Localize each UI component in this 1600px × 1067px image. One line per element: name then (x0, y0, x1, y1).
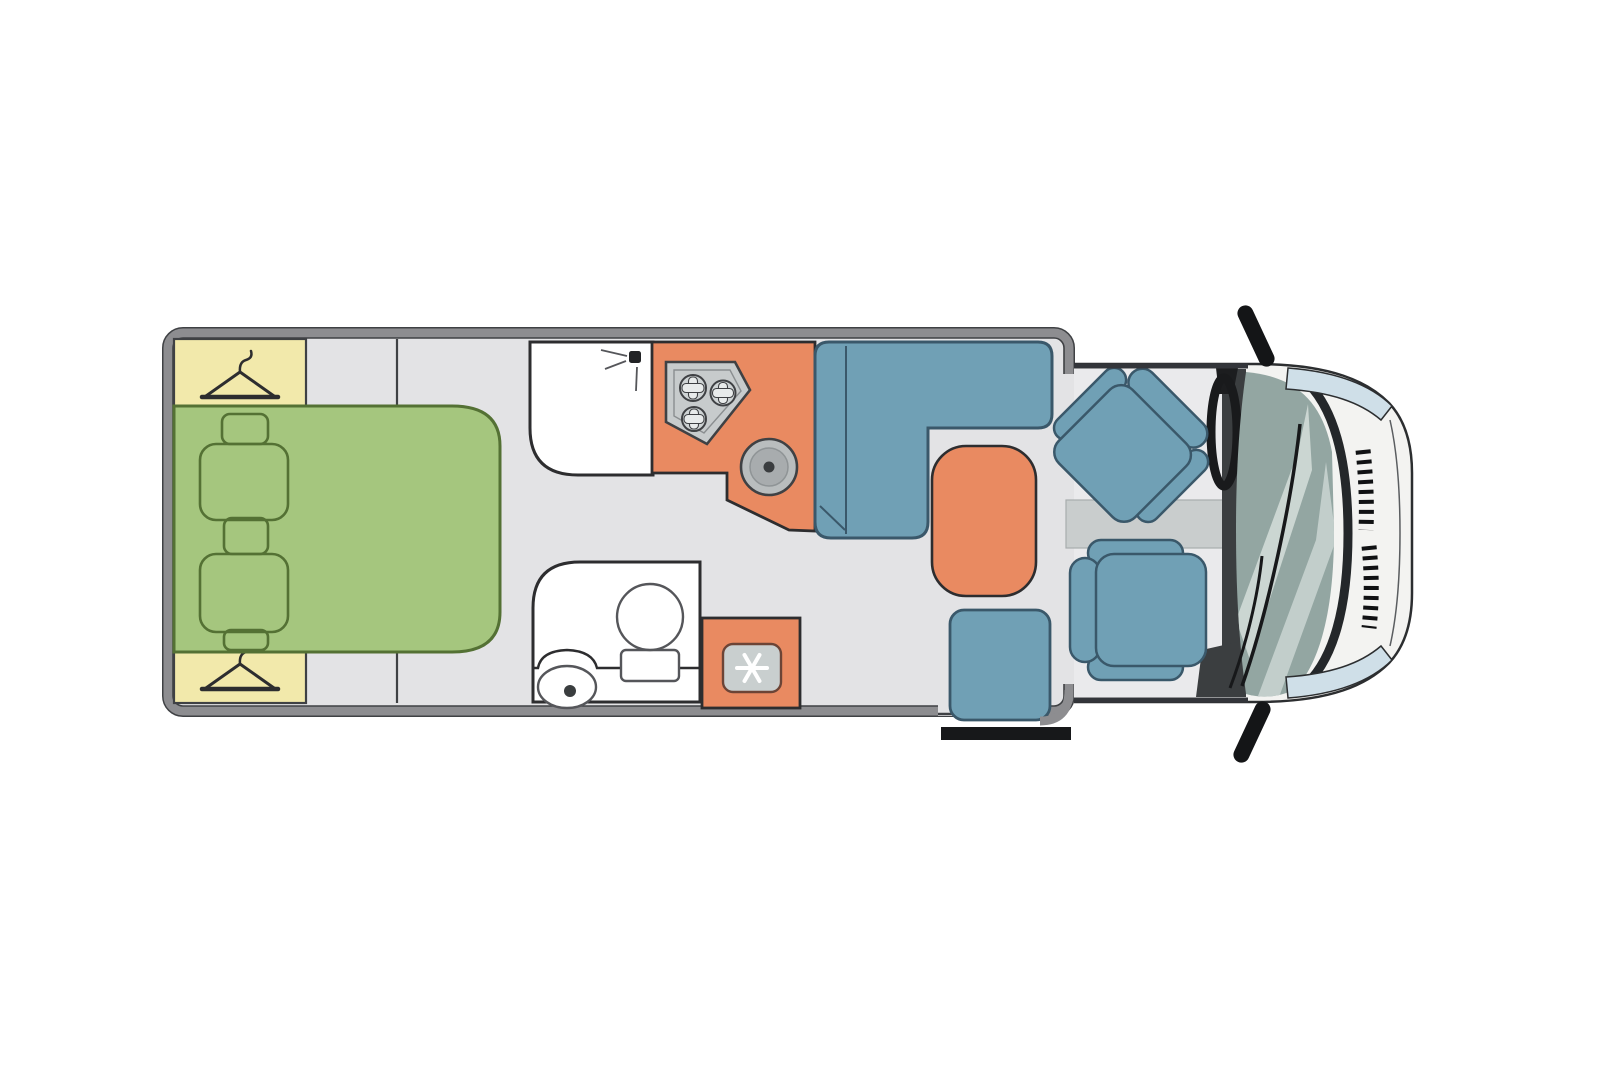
floorplan-svg (0, 0, 1600, 1067)
mirror-icon-bottom (1231, 699, 1273, 766)
passenger-cushion (1096, 554, 1206, 666)
cab (1036, 303, 1412, 766)
toilet-room (533, 562, 700, 708)
mirror-icon-top (1235, 303, 1277, 370)
entry-step (941, 727, 1071, 740)
side-seat (950, 610, 1050, 720)
burner-3 (682, 407, 706, 431)
passenger-seat (1070, 540, 1206, 680)
toilet-icon (617, 584, 683, 681)
washbasin-icon (538, 666, 596, 708)
burner-2 (711, 381, 736, 406)
windshield (1230, 372, 1348, 700)
fridge (702, 618, 800, 708)
floorplan-page (0, 0, 1600, 1067)
shower-room (530, 342, 653, 475)
round-sink-icon (741, 439, 797, 495)
burner-1 (680, 375, 706, 401)
dinette-table (932, 446, 1036, 596)
